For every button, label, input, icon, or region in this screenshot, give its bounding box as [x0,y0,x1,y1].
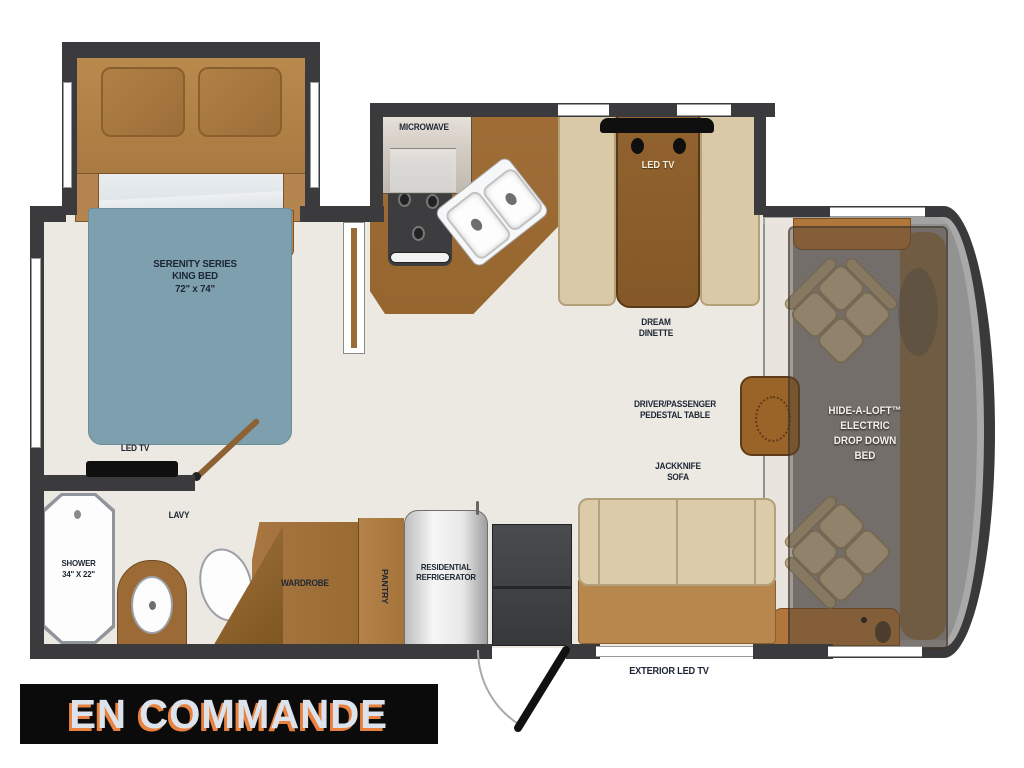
fridge-label: RESIDENTIAL REFRIGERATOR [407,562,484,582]
bottom-window-2 [828,646,922,657]
lavy-label: LAVY [150,510,207,521]
sofa-arm-line [598,500,600,584]
loft-line1: HIDE-A-LOFT™ [805,404,926,419]
rv-floorplan: HIDE-A-LOFT™ ELECTRIC DROP DOWN BED SERE… [0,0,1024,768]
fridge-label-line1: RESIDENTIAL [407,562,484,572]
dinette-label-line2: DINETTE [612,328,700,339]
microwave-label: MICROWAVE [382,122,467,133]
entry-door [460,640,590,755]
left-window [31,258,41,448]
bed-label-line2: KING BED [121,270,268,282]
pedestal-label-line1: DRIVER/PASSENGER [606,399,744,410]
vanity-drain [149,601,156,610]
wardrobe-label: WARDROBE [259,578,351,589]
bed-label: SERENITY SERIES KING BED 72" x 74" [121,258,268,295]
slideout-window-left [63,82,72,188]
slideout-wall-top [62,42,320,58]
loft-line3: DROP DOWN [805,434,926,449]
bottom-wall-main [30,644,492,659]
dinette-tv-mount [673,138,686,154]
pillow-right [198,67,282,137]
dinette-tv-label: LED TV [623,160,693,171]
burner-knob [412,226,425,241]
pedestal-label: DRIVER/PASSENGER PEDESTAL TABLE [606,399,744,420]
shower-drain [74,510,81,519]
king-bed-mattress [88,208,292,445]
dinette-label-line1: DREAM [612,317,700,328]
bed-label-line3: 72" x 74" [121,283,268,295]
sink-drain [469,217,485,233]
dinette-label: DREAM DINETTE [612,317,700,338]
shower-label-line2: 34" X 22" [61,569,95,579]
loft-line4: BED [805,449,926,464]
dinette-tv [600,118,714,133]
entry-door-arc [478,650,520,725]
bottom-wall-right [753,644,833,659]
pedestal-label-line2: PEDESTAL TABLE [606,410,744,421]
galley-window-1 [558,104,609,116]
dinette-bench-left [558,110,616,306]
entry-step-cabinet [492,524,572,646]
shower-label: SHOWER 34" X 22" [61,558,95,578]
loft-line2: ELECTRIC [805,419,926,434]
fridge-label-line2: REFRIGERATOR [407,572,484,582]
kitchen-wall-vertical [370,103,383,215]
status-banner-text: EN COMMANDE [70,691,389,738]
pocket-door-panel [351,228,357,348]
sink-drain [503,191,519,207]
microwave-window [390,148,456,192]
dinette-bench-right [700,110,760,306]
bedroom-tv [86,461,178,477]
stove-handle [390,252,450,263]
shower-label-line1: SHOWER [61,558,95,568]
dinette-wall-right [754,103,766,215]
cab-window-top [830,207,925,217]
dinette-table [616,110,700,308]
galley-window-2 [677,104,731,116]
sofa-seam [676,500,678,584]
hide-a-loft-label: HIDE-A-LOFT™ ELECTRIC DROP DOWN BED [805,404,926,463]
pillow-left [101,67,185,137]
dinette-tv-mount [631,138,644,154]
exterior-tv-label: EXTERIOR LED TV [602,666,736,678]
burner-knob [426,194,439,209]
bed-label-line1: SERENITY SERIES [121,258,268,270]
burner-knob [398,192,411,207]
bedroom-tv-label: LED TV [103,443,167,454]
entry-step-seam [492,586,572,589]
fridge-handle [476,501,479,515]
sofa-arm-line [754,500,756,584]
sofa-label-line2: SOFA [645,472,711,483]
sofa-label: JACKKNIFE SOFA [645,461,711,482]
entry-door-leaf [518,650,566,728]
sofa-label-line1: JACKKNIFE [645,461,711,472]
slideout-window-right [310,82,319,188]
bottom-window-1 [596,646,753,657]
pedestal-table-ring [755,396,791,442]
status-banner: EN COMMANDE [20,684,438,744]
sofa-seat [578,578,776,644]
pantry-label: PANTRY [373,546,390,626]
bathroom-wall-top [30,475,195,491]
